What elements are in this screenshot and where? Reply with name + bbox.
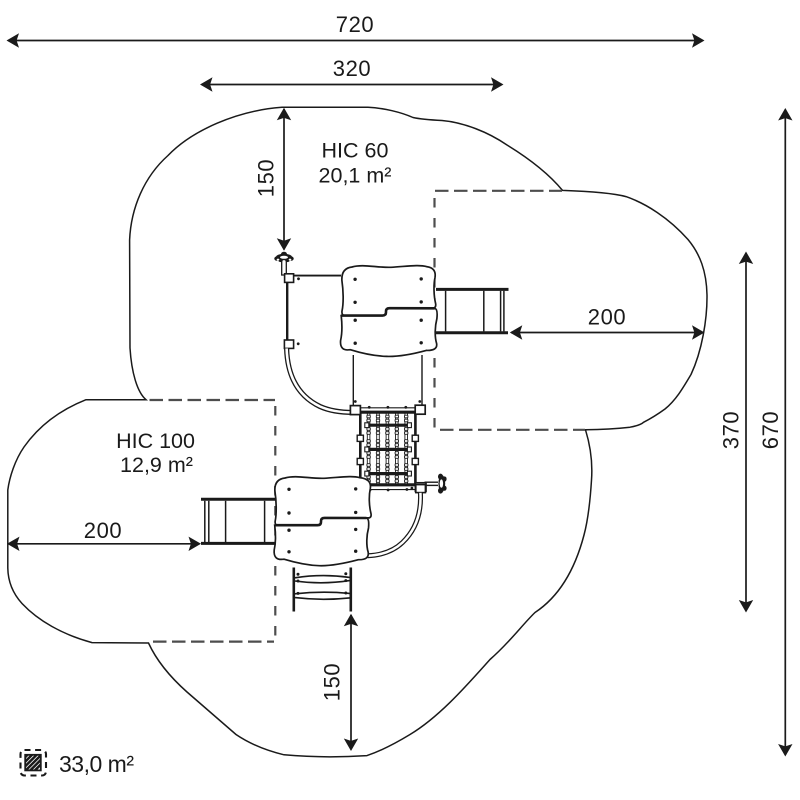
svg-text:320: 320: [333, 56, 372, 81]
svg-text:33,0 m²: 33,0 m²: [59, 751, 134, 777]
svg-text:HIC 100: HIC 100: [116, 429, 195, 453]
svg-text:200: 200: [588, 305, 627, 330]
svg-text:12,9 m²: 12,9 m²: [120, 453, 193, 477]
svg-text:150: 150: [320, 663, 345, 702]
svg-text:150: 150: [254, 159, 279, 198]
svg-text:20,1 m²: 20,1 m²: [319, 164, 392, 188]
svg-text:HIC 60: HIC 60: [322, 139, 389, 163]
svg-text:670: 670: [758, 411, 783, 450]
svg-text:200: 200: [84, 518, 123, 543]
svg-text:720: 720: [336, 12, 375, 37]
svg-text:370: 370: [719, 411, 744, 450]
